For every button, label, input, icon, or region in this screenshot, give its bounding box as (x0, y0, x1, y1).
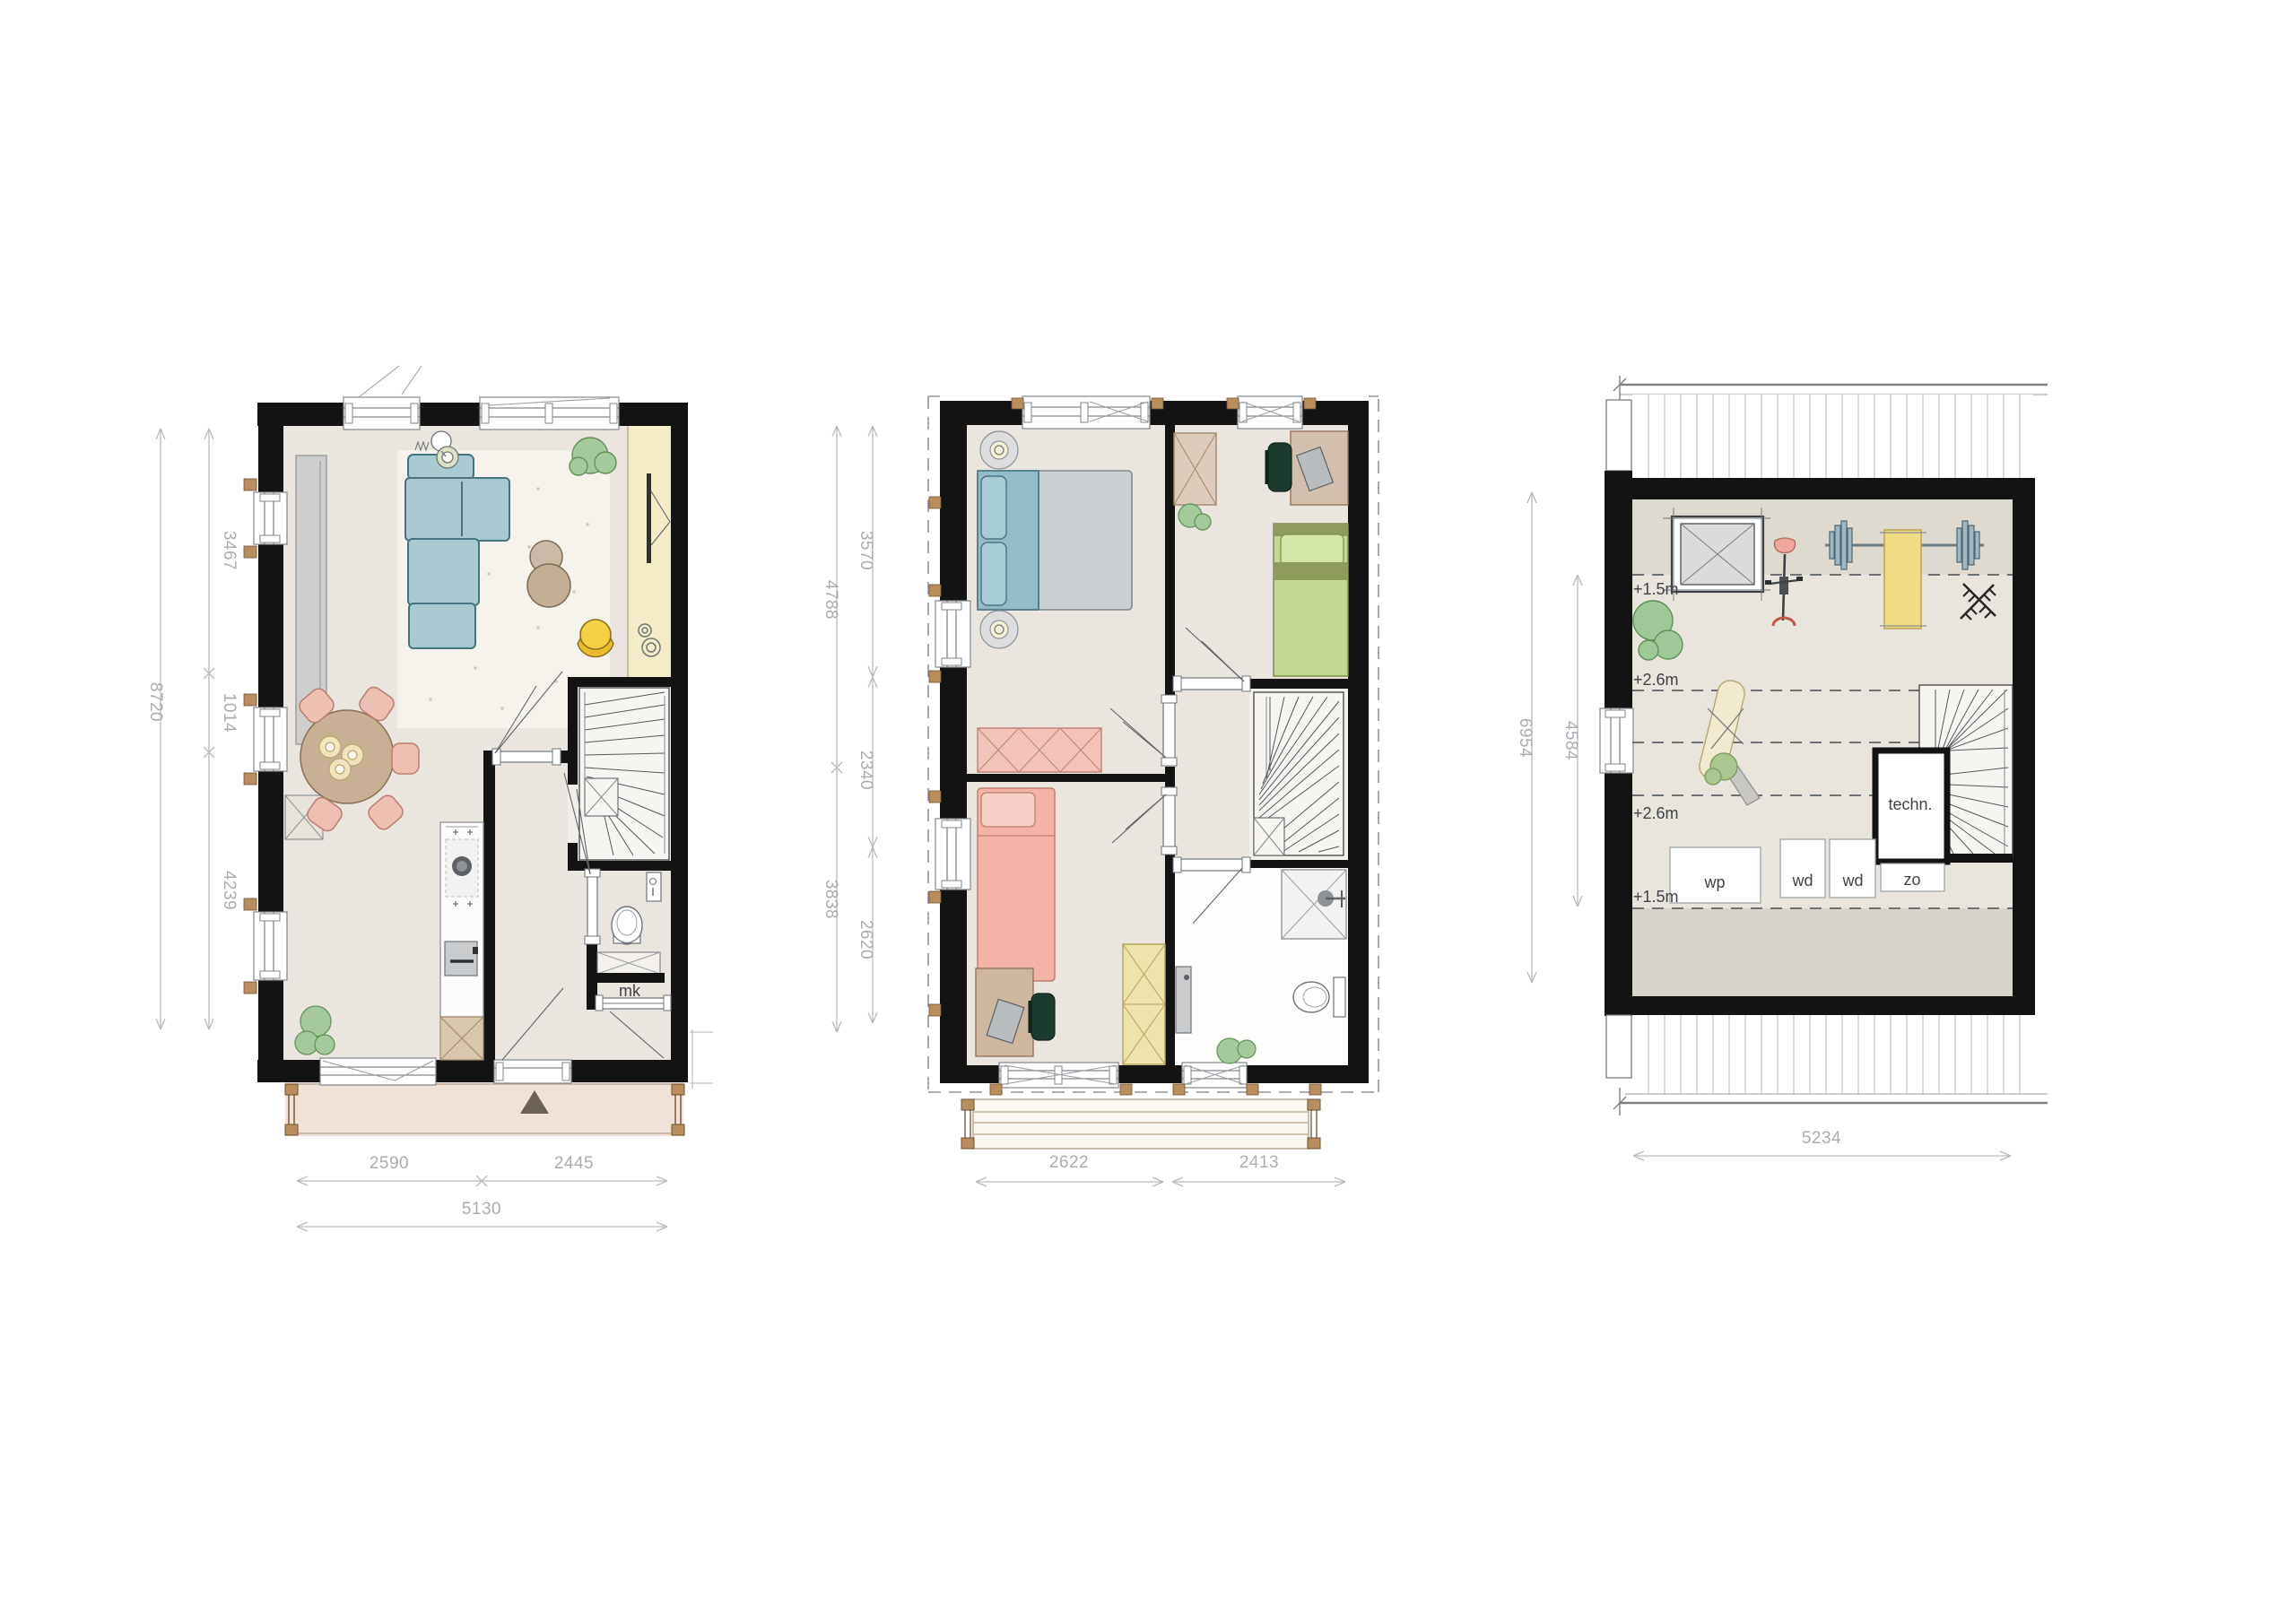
svg-text:2413: 2413 (1239, 1153, 1279, 1172)
svg-text:2620: 2620 (857, 920, 875, 959)
svg-text:5130: 5130 (462, 1200, 501, 1219)
svg-text:2590: 2590 (370, 1154, 409, 1173)
svg-text:+1.5m: +1.5m (1633, 580, 1679, 598)
svg-text:zo: zo (1903, 871, 1920, 889)
svg-text:4584: 4584 (1561, 721, 1580, 760)
svg-text:5234: 5234 (1802, 1129, 1841, 1148)
svg-text:2340: 2340 (857, 751, 875, 790)
svg-text:2622: 2622 (1049, 1153, 1089, 1172)
svg-text:+2.6m: +2.6m (1633, 671, 1679, 689)
svg-text:6954: 6954 (1516, 718, 1535, 758)
svg-text:2445: 2445 (554, 1154, 594, 1173)
svg-text:wd: wd (1841, 872, 1863, 890)
svg-text:mk: mk (619, 982, 641, 1000)
svg-text:techn.: techn. (1888, 795, 1932, 813)
svg-text:3467: 3467 (220, 531, 239, 570)
svg-text:8720: 8720 (146, 682, 165, 722)
svg-text:4788: 4788 (822, 580, 840, 620)
svg-text:3570: 3570 (857, 531, 875, 570)
svg-text:1014: 1014 (220, 693, 239, 733)
svg-text:4239: 4239 (220, 871, 239, 910)
svg-text:wp: wp (1703, 873, 1725, 891)
svg-text:+2.6m: +2.6m (1633, 804, 1679, 822)
svg-text:3838: 3838 (822, 880, 840, 919)
svg-text:wd: wd (1791, 872, 1813, 890)
svg-text:+1.5m: +1.5m (1633, 888, 1679, 906)
